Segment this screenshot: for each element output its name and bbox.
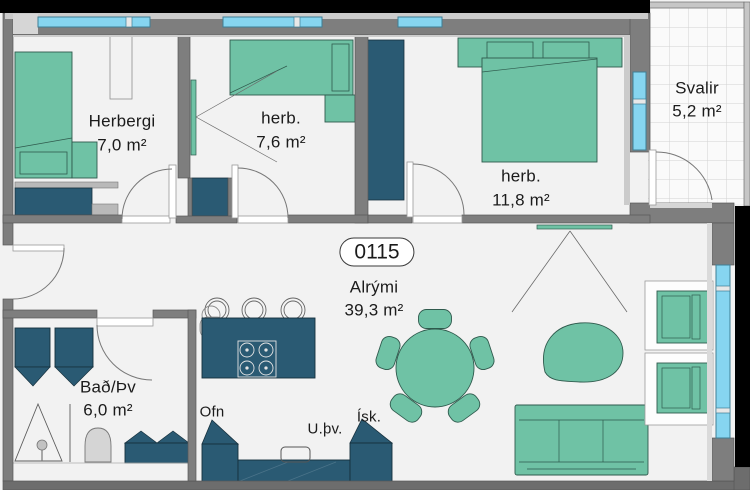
bed-single xyxy=(230,40,353,95)
wall-left-upper xyxy=(3,13,13,245)
room-label-bad: Bað/Þv xyxy=(80,379,136,396)
door-leaf-balcony xyxy=(649,150,656,205)
bed-single xyxy=(15,52,72,178)
bed-footboard xyxy=(72,142,97,178)
armchair-unit xyxy=(645,281,713,350)
balcony-rail-top xyxy=(648,2,744,8)
kitchen-island xyxy=(202,318,315,378)
exterior-top xyxy=(0,0,650,13)
wall-closet-left xyxy=(188,178,192,217)
duct xyxy=(110,35,132,99)
wall-bedroom1-bottom xyxy=(3,215,122,223)
room-area-herb3: 11,8 m² xyxy=(492,192,550,209)
wall-right-upper xyxy=(712,223,734,265)
wall-bedroom3-bottom-right xyxy=(462,215,650,223)
window-mullion xyxy=(294,17,300,27)
dining-chair xyxy=(419,310,452,329)
door-threshold xyxy=(238,216,288,223)
window-mullion xyxy=(716,408,730,413)
room-label-svalir: Svalir xyxy=(675,80,719,97)
floor-plan: Herbergi 7,0 m² herb. 7,6 m² herb. 11,8 … xyxy=(0,0,750,490)
toilet xyxy=(85,428,111,462)
wall-bedroom1-2 xyxy=(178,35,190,178)
window-mullion xyxy=(633,99,646,104)
door-threshold xyxy=(413,216,462,223)
appliance-label-oven: Ofn xyxy=(200,405,225,420)
appliance-label-dishwasher: U.þv. xyxy=(308,422,343,437)
exterior-right xyxy=(735,206,750,467)
room-area-svalir: 5,2 m² xyxy=(672,103,721,120)
wardrobe-top xyxy=(15,182,118,188)
drain xyxy=(37,440,47,450)
wall-bedroom3-bottom-left xyxy=(368,215,412,223)
wall-bedroom2-bottom xyxy=(288,215,368,223)
door-leaf-bedroom1 xyxy=(169,165,176,218)
balcony-rail-right xyxy=(744,2,750,206)
room-label-herb2: herb. xyxy=(261,110,301,127)
wall-bathroom-right xyxy=(188,310,196,481)
wall-bedroom2-3 xyxy=(355,35,368,223)
room-label-herbergi: Herbergi xyxy=(89,113,156,130)
radiator xyxy=(537,225,612,229)
room-area-alrymi: 39,3 m² xyxy=(344,302,403,319)
window-top-2 xyxy=(223,17,322,27)
door-leaf-entry xyxy=(13,245,64,251)
window-balcony-wall xyxy=(633,72,646,150)
unit-number-badge: 0115 xyxy=(339,237,414,266)
wall-under-closet xyxy=(176,216,237,223)
window-top-3 xyxy=(398,17,442,27)
armchair-unit xyxy=(645,353,713,425)
room-label-herb3: herb. xyxy=(501,168,541,185)
room-area-herb2: 7,6 m² xyxy=(256,134,305,151)
closet xyxy=(192,178,228,216)
room-area-bad: 6,0 m² xyxy=(83,402,132,419)
bed-double xyxy=(482,58,597,162)
room-label-alrymi: Alrými xyxy=(350,279,398,296)
wardrobe xyxy=(367,40,404,200)
dining-table xyxy=(396,329,474,407)
wall-bathroom-top-left xyxy=(3,310,97,318)
bedside-table xyxy=(325,95,355,122)
room-area-herbergi: 7,0 m² xyxy=(97,137,146,154)
window-mullion xyxy=(126,17,132,27)
wall-right-lower xyxy=(712,438,734,481)
wardrobe xyxy=(15,188,92,215)
wall-left-lower xyxy=(3,299,13,481)
wardrobe-strip xyxy=(191,80,196,155)
sofa xyxy=(515,405,648,475)
door-threshold xyxy=(122,216,170,223)
wall-bottom xyxy=(3,481,736,490)
wardrobe-step xyxy=(92,204,118,215)
window-mullion xyxy=(716,286,730,291)
window-top-1 xyxy=(38,17,150,27)
door-leaf-bedroom3 xyxy=(407,162,413,217)
door-leaf-bedroom2 xyxy=(232,165,238,218)
appliance-label-fridge: Ísk. xyxy=(357,410,381,425)
door-threshold-bathroom xyxy=(97,318,153,326)
wall-corner-br xyxy=(734,467,750,490)
